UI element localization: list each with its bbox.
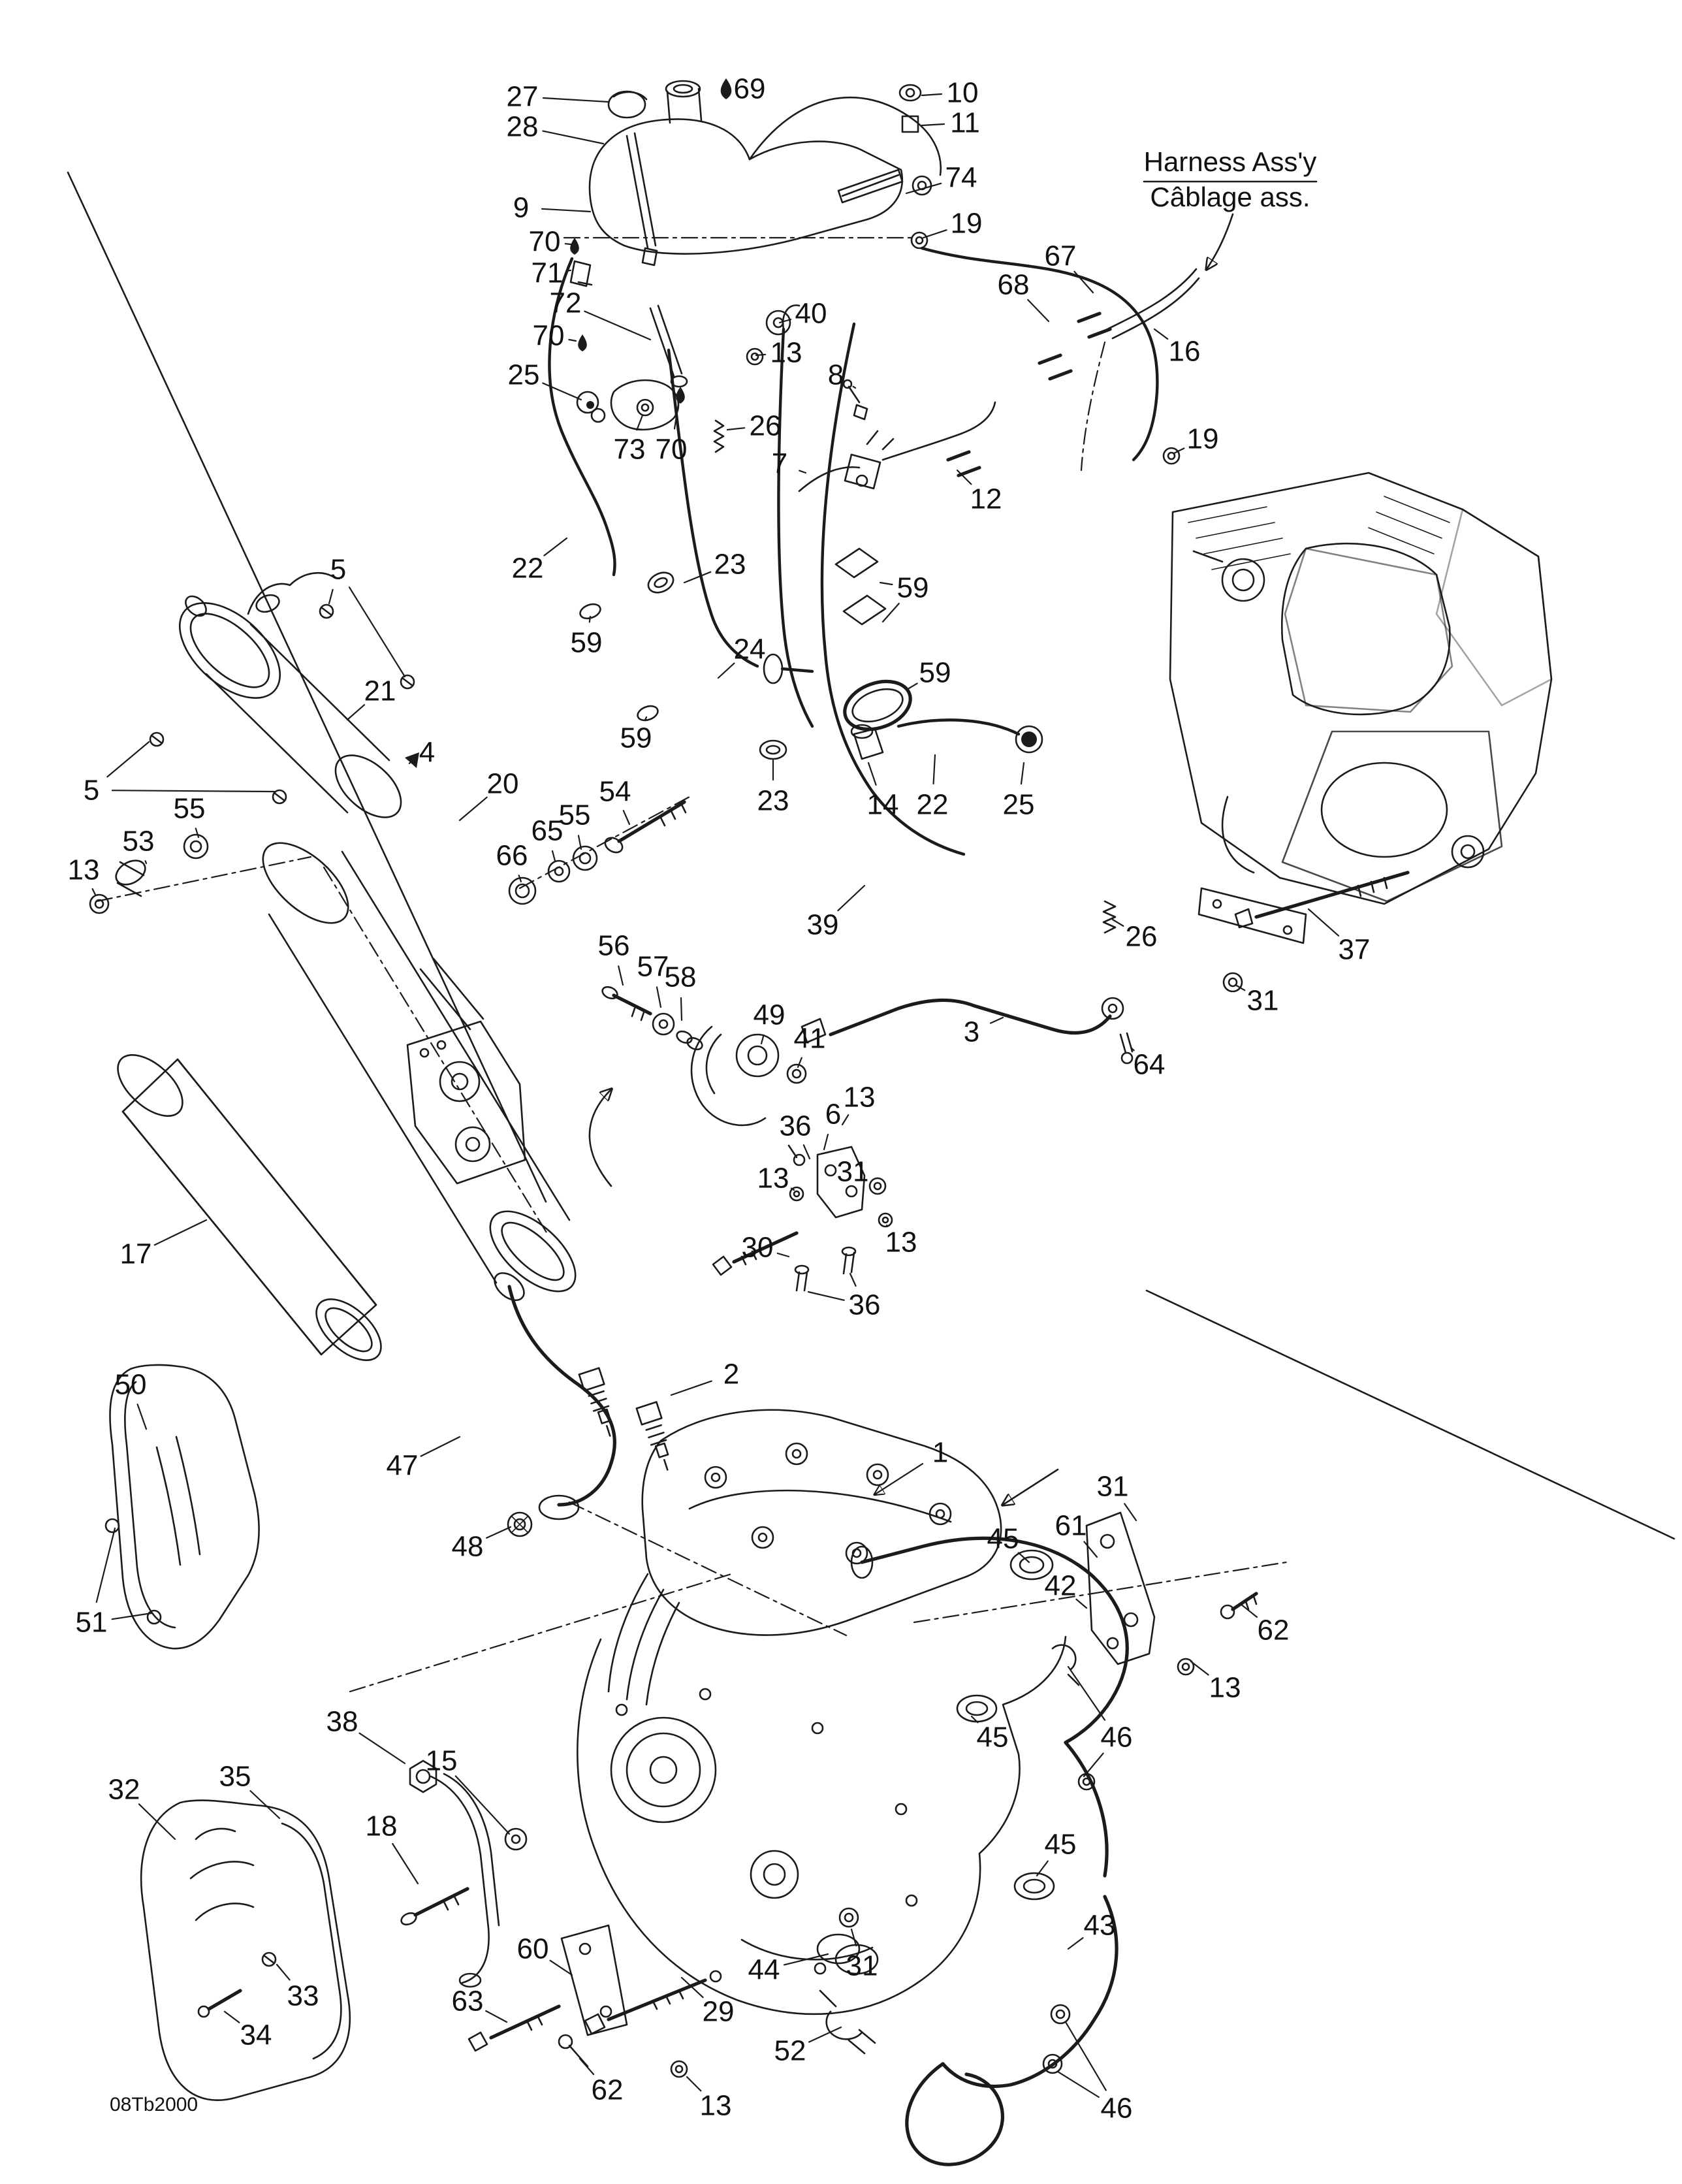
callout-29: 29: [682, 1978, 734, 2028]
callout-11: 11: [922, 107, 980, 139]
leader-line: [1309, 909, 1339, 936]
callout-label: 13: [844, 1082, 876, 1114]
callout-label: 49: [754, 999, 785, 1031]
leader-line: [923, 230, 947, 238]
callout-label: 14: [867, 789, 899, 821]
callout-label: 2: [723, 1358, 739, 1390]
leader-line: [1241, 1604, 1257, 1617]
callout-label: 25: [1003, 789, 1035, 821]
leader-line: [409, 763, 410, 763]
leader-line: [1113, 920, 1123, 926]
callout-59: 59: [909, 657, 951, 689]
callout-label: 12: [970, 483, 1002, 515]
exhaust-elbow-43-drawing: [469, 1873, 1117, 2164]
callout-31: 31: [837, 1156, 871, 1188]
callout-56: 56: [598, 930, 630, 986]
callout-67: 67: [1045, 240, 1093, 293]
callout-61: 61: [1055, 1510, 1097, 1558]
callout-1: 1: [875, 1437, 948, 1495]
callout-label: 41: [794, 1023, 826, 1055]
leader-line: [991, 1018, 1003, 1023]
callout-13: 13: [885, 1225, 917, 1259]
kick-lever-drawing: [802, 873, 1408, 1063]
callout-59: 59: [571, 617, 603, 659]
spark-plug: [637, 1402, 678, 1473]
callout-label: 55: [174, 793, 206, 825]
callout-25: 25: [1003, 763, 1035, 821]
callout-label: 28: [507, 111, 539, 143]
callout-50: 50: [115, 1369, 147, 1430]
leader-line: [552, 851, 555, 861]
callout-55: 55: [174, 793, 206, 838]
leader-line: [657, 987, 661, 1007]
callout-label: 61: [1055, 1510, 1087, 1542]
callout-19: 19: [1174, 423, 1218, 455]
leader-line: [671, 1381, 712, 1395]
callout-label: 42: [1045, 1570, 1077, 1602]
callout-45: 45: [1037, 1829, 1076, 1876]
callout-label: 64: [1134, 1049, 1166, 1081]
callout-label: 50: [115, 1369, 147, 1401]
callout-66: 66: [496, 840, 528, 882]
leader-line: [868, 763, 876, 785]
callout-label: 35: [219, 1761, 251, 1793]
callout-33: 33: [277, 1965, 319, 2012]
leader-line: [909, 683, 917, 688]
callout-19: 19: [923, 208, 982, 240]
oil-cap-27: [609, 91, 646, 118]
leader-line: [799, 471, 806, 473]
callout-label: 74: [945, 162, 977, 194]
callout-label: 46: [1101, 2093, 1133, 2125]
callout-69: 69: [734, 73, 766, 105]
callout-label: 3: [964, 1016, 979, 1048]
engine-covers-drawing: [141, 1761, 526, 2100]
leader-line: [906, 184, 941, 193]
callout-34: 34: [225, 2012, 272, 2051]
throttle-lever-7: [799, 431, 893, 491]
callout-13: 13: [68, 854, 100, 895]
callout-59: 59: [620, 717, 652, 754]
callout-label: 24: [734, 634, 766, 666]
callout-label: 26: [750, 410, 782, 442]
callout-label: 51: [76, 1607, 108, 1639]
callout-label: 62: [1258, 1614, 1290, 1646]
callout-label: 52: [774, 2035, 806, 2067]
callout-label: 15: [426, 1745, 458, 1777]
callout-27: 27: [507, 81, 609, 113]
callout-label: 26: [1126, 921, 1158, 953]
leader-line: [1028, 300, 1049, 321]
leader-line: [875, 1464, 923, 1494]
connectors-12: [883, 402, 995, 475]
callout-label: 45: [1045, 1829, 1077, 1861]
callout-31: 31: [1235, 985, 1278, 1017]
leader-line: [842, 1115, 848, 1125]
leader-line: [146, 861, 146, 863]
callout-18: 18: [366, 1810, 418, 1884]
leader-line: [824, 1134, 828, 1149]
callout-label: 69: [734, 73, 766, 105]
callout-37: 37: [1309, 909, 1370, 966]
leader-line: [543, 383, 581, 400]
callout-36: 36: [780, 1110, 812, 1159]
leader-line: [853, 387, 855, 388]
leader-line: [1021, 763, 1024, 784]
callout-label: 25: [508, 359, 540, 391]
cable-8: [844, 380, 867, 419]
callout-label: 30: [742, 1232, 774, 1264]
leader-line: [838, 886, 865, 910]
callout-21: 21: [347, 675, 396, 720]
callout-label: 22: [512, 553, 544, 585]
callout-layer: 2728691011749707172702519401382671267681…: [68, 73, 1371, 2125]
callout-39: 39: [807, 886, 865, 941]
callout-70: 70: [656, 400, 688, 466]
engine-bottom-drawing: [577, 1368, 1066, 2014]
callout-label: 37: [1339, 934, 1371, 966]
sheet-code: 08Tb2000: [110, 2094, 198, 2115]
callout-73: 73: [614, 415, 646, 466]
callout-16: 16: [1154, 329, 1200, 368]
leader-line: [347, 705, 364, 720]
leader-line: [543, 131, 603, 144]
leader-line: [1124, 1503, 1136, 1520]
callout-59: 59: [880, 572, 928, 622]
callout-35: 35: [219, 1761, 279, 1819]
callout-label: 27: [507, 81, 539, 113]
callout-38: 38: [326, 1706, 405, 1764]
callout-68: 68: [998, 269, 1049, 322]
callout-label: 40: [795, 298, 827, 330]
leader-line: [1068, 1938, 1083, 1949]
callout-label: 44: [748, 1954, 780, 1986]
callout-label: 1: [932, 1437, 948, 1469]
leader-line: [804, 1145, 810, 1159]
callout-48: 48: [452, 1527, 511, 1563]
leader-line: [584, 312, 650, 340]
callout-label: 73: [614, 434, 646, 466]
leader-line: [486, 1527, 511, 1538]
callout-60: 60: [517, 1933, 572, 1976]
callout-label: 38: [326, 1706, 358, 1738]
callout-26: 26: [727, 410, 781, 442]
leader-line: [883, 603, 899, 622]
callout-label: 31: [1247, 985, 1279, 1017]
callout-label: 9: [513, 192, 529, 224]
leader-line: [681, 998, 682, 1020]
callout-label: 34: [240, 2019, 272, 2051]
callout-2: 2: [671, 1358, 739, 1396]
callout-28: 28: [507, 111, 603, 144]
leader-line: [329, 590, 333, 603]
callout-label: 58: [665, 961, 697, 993]
callout-45: 45: [972, 1716, 1008, 1754]
callout-22: 22: [917, 755, 949, 821]
callout-9: 9: [513, 192, 590, 224]
callout-5: 5: [329, 554, 405, 677]
leader-line: [360, 1733, 405, 1763]
callout-44: 44: [748, 1954, 828, 1986]
callout-label: 72: [550, 287, 582, 319]
leader-line: [112, 790, 274, 792]
callout-label: 54: [599, 776, 631, 808]
callout-label: 53: [123, 826, 155, 858]
callout-label: 11: [950, 107, 980, 139]
callout-label: 17: [120, 1238, 152, 1270]
leader-line: [637, 415, 643, 430]
leader-line: [565, 244, 571, 244]
harness-label: Harness Ass'y Câblage ass.: [1144, 146, 1317, 269]
leader-line: [349, 587, 405, 677]
callout-label: 43: [1084, 1910, 1116, 1942]
leader-line: [1074, 272, 1093, 293]
callout-label: 48: [452, 1531, 484, 1563]
callout-label: 18: [366, 1810, 398, 1842]
leader-line: [392, 1844, 418, 1884]
callout-3: 3: [964, 1016, 1003, 1048]
callout-label: 13: [700, 2090, 732, 2122]
leader-line: [421, 1437, 460, 1456]
callout-label: 66: [496, 840, 528, 872]
callout-label: 23: [714, 549, 746, 581]
callout-label: 60: [517, 1933, 549, 1965]
callout-label: 21: [364, 675, 396, 707]
callout-label: 71: [532, 257, 563, 289]
callout-label: 29: [703, 1996, 735, 2028]
leader-line: [761, 1035, 764, 1044]
callout-20: 20: [460, 768, 518, 821]
callout-label: 36: [849, 1289, 881, 1321]
leader-line: [618, 966, 623, 985]
leader-line: [645, 717, 646, 719]
engine-top-drawing: [1170, 473, 1551, 904]
callout-42: 42: [1045, 1570, 1087, 1609]
parts-diagram: Harness Ass'y Câblage ass. 08Tb2000 2728…: [0, 0, 1682, 2184]
callout-label: 31: [846, 1950, 878, 1982]
leader-line: [1076, 1599, 1087, 1608]
callout-label: 23: [757, 785, 789, 817]
leader-line: [590, 617, 590, 622]
construction-lines: [68, 172, 1674, 1692]
leader-line: [934, 755, 935, 784]
callout-72: 72: [550, 287, 650, 340]
leader-line: [196, 828, 198, 837]
y-pipe-42-drawing: [851, 1538, 1127, 1876]
callout-label: 10: [947, 77, 979, 109]
callout-22: 22: [512, 538, 567, 585]
leader-line: [850, 1274, 856, 1286]
callout-label: 13: [68, 854, 100, 886]
callout-30: 30: [742, 1232, 789, 1264]
leader-line: [155, 1220, 206, 1245]
callout-13: 13: [757, 1163, 794, 1195]
callout-12: 12: [957, 470, 1002, 515]
callout-label: 33: [287, 1980, 319, 2012]
leader-line: [684, 572, 710, 583]
parts-diagram-page: Harness Ass'y Câblage ass. 08Tb2000 2728…: [0, 0, 1682, 2184]
leader-line: [138, 1404, 146, 1429]
callout-17: 17: [120, 1220, 206, 1270]
callout-label: 8: [828, 359, 844, 391]
callout-label: 22: [917, 789, 949, 821]
harness-title: Harness Ass'y: [1144, 146, 1317, 177]
leader-line: [93, 889, 95, 895]
callout-31: 31: [1097, 1471, 1136, 1521]
leader-line: [544, 538, 567, 556]
leader-line: [880, 583, 892, 585]
leader-line: [460, 797, 487, 820]
leader-line: [225, 2012, 239, 2023]
heat-shield-50-drawing: [106, 1365, 259, 1648]
callout-label: 4: [419, 737, 435, 769]
leader-line: [624, 811, 629, 824]
callout-58: 58: [665, 961, 697, 1021]
leader-line: [727, 428, 744, 430]
leader-line: [922, 94, 942, 95]
callout-62: 62: [1241, 1604, 1289, 1646]
callout-label: 32: [108, 1774, 140, 1806]
callout-13: 13: [687, 2077, 731, 2122]
callout-25: 25: [508, 359, 581, 400]
leader-line: [1235, 985, 1245, 990]
callout-36: 36: [808, 1274, 880, 1321]
leader-line: [1154, 329, 1167, 339]
callout-label: 59: [919, 657, 951, 689]
callout-label: 46: [1101, 1722, 1133, 1754]
leader-line: [97, 1528, 115, 1602]
callout-label: 31: [837, 1156, 869, 1188]
callout-label: 19: [951, 208, 983, 240]
callout-label: 20: [487, 768, 519, 800]
leader-line: [580, 2059, 594, 2074]
callout-46: 46: [1058, 2022, 1132, 2125]
callout-70: 70: [533, 320, 576, 352]
callout-label: 67: [1045, 240, 1077, 272]
leader-line: [1068, 1667, 1105, 1720]
silencer-drawing: [107, 1044, 392, 1372]
callout-14: 14: [867, 763, 899, 821]
callout-55: 55: [559, 799, 591, 850]
callout-41: 41: [794, 1023, 826, 1068]
oil-drop-icon: [721, 78, 732, 99]
callout-13: 13: [842, 1082, 875, 1125]
callout-label: 16: [1169, 336, 1201, 368]
leader-line: [569, 340, 576, 341]
callout-label: 5: [330, 554, 346, 586]
callout-62: 62: [580, 2059, 623, 2106]
leader-line: [107, 742, 149, 777]
callout-label: 47: [387, 1450, 419, 1482]
muffler-drawing: [90, 802, 686, 1306]
callout-label: 62: [592, 2074, 624, 2106]
callout-label: 13: [1209, 1672, 1241, 1704]
callout-label: 70: [533, 320, 565, 352]
callout-32: 32: [108, 1774, 175, 1840]
callout-label: 45: [977, 1722, 1009, 1754]
callout-label: 68: [998, 269, 1030, 301]
callout-label: 36: [780, 1110, 812, 1142]
callout-6: 6: [824, 1099, 841, 1150]
callout-15: 15: [426, 1745, 509, 1835]
callout-63: 63: [452, 1985, 507, 2023]
callout-64: 64: [1131, 1048, 1165, 1081]
callout-23: 23: [684, 549, 746, 583]
callout-label: 19: [1187, 423, 1219, 455]
callout-43: 43: [1068, 1910, 1115, 1950]
callout-label: 55: [559, 799, 591, 831]
leader-line: [1058, 2072, 1099, 2097]
callout-49: 49: [754, 999, 785, 1044]
leader-line: [922, 124, 944, 125]
damper-74: [838, 170, 902, 202]
dipstick-28: [627, 133, 657, 265]
leader-line: [277, 1965, 290, 1980]
callout-label: 13: [770, 337, 802, 369]
hoses-drawing: [549, 248, 1199, 854]
callout-label: 70: [656, 434, 688, 466]
harness-subtitle: Câblage ass.: [1150, 182, 1310, 212]
leader-line: [687, 2077, 701, 2091]
callout-label: 13: [757, 1163, 789, 1195]
callout-13: 13: [1191, 1662, 1241, 1704]
leader-line: [718, 664, 734, 678]
callout-label: 70: [529, 226, 561, 258]
leader-line: [756, 355, 765, 355]
callout-label: 13: [885, 1227, 917, 1259]
callout-54: 54: [599, 776, 631, 825]
callout-label: 59: [620, 722, 652, 754]
callout-label: 59: [897, 572, 929, 604]
callout-label: 7: [772, 448, 787, 480]
leader-line: [543, 98, 609, 102]
callout-label: 5: [84, 775, 99, 807]
callout-7: 7: [772, 448, 806, 480]
leader-line: [1084, 1542, 1097, 1557]
callout-53: 53: [123, 826, 155, 864]
callout-label: 6: [825, 1099, 841, 1131]
callout-13: 13: [756, 337, 802, 369]
callout-label: 59: [571, 627, 603, 659]
leader-line: [542, 209, 590, 212]
fastener-10-11: [900, 85, 921, 132]
leader-line: [778, 1253, 789, 1257]
callout-23: 23: [757, 760, 789, 817]
callout-label: 31: [1097, 1471, 1129, 1503]
callout-label: 45: [987, 1523, 1019, 1555]
callout-26: 26: [1113, 920, 1157, 953]
leader-line: [1084, 1754, 1103, 1776]
callout-70: 70: [529, 226, 571, 258]
callout-10: 10: [922, 77, 978, 109]
callout-label: 56: [598, 930, 630, 962]
callout-label: 63: [452, 1985, 484, 2017]
callout-47: 47: [387, 1437, 460, 1482]
callout-label: 39: [807, 909, 839, 941]
leader-line: [809, 2027, 841, 2042]
leader-line: [486, 2011, 507, 2022]
leader-line: [808, 1292, 844, 1300]
